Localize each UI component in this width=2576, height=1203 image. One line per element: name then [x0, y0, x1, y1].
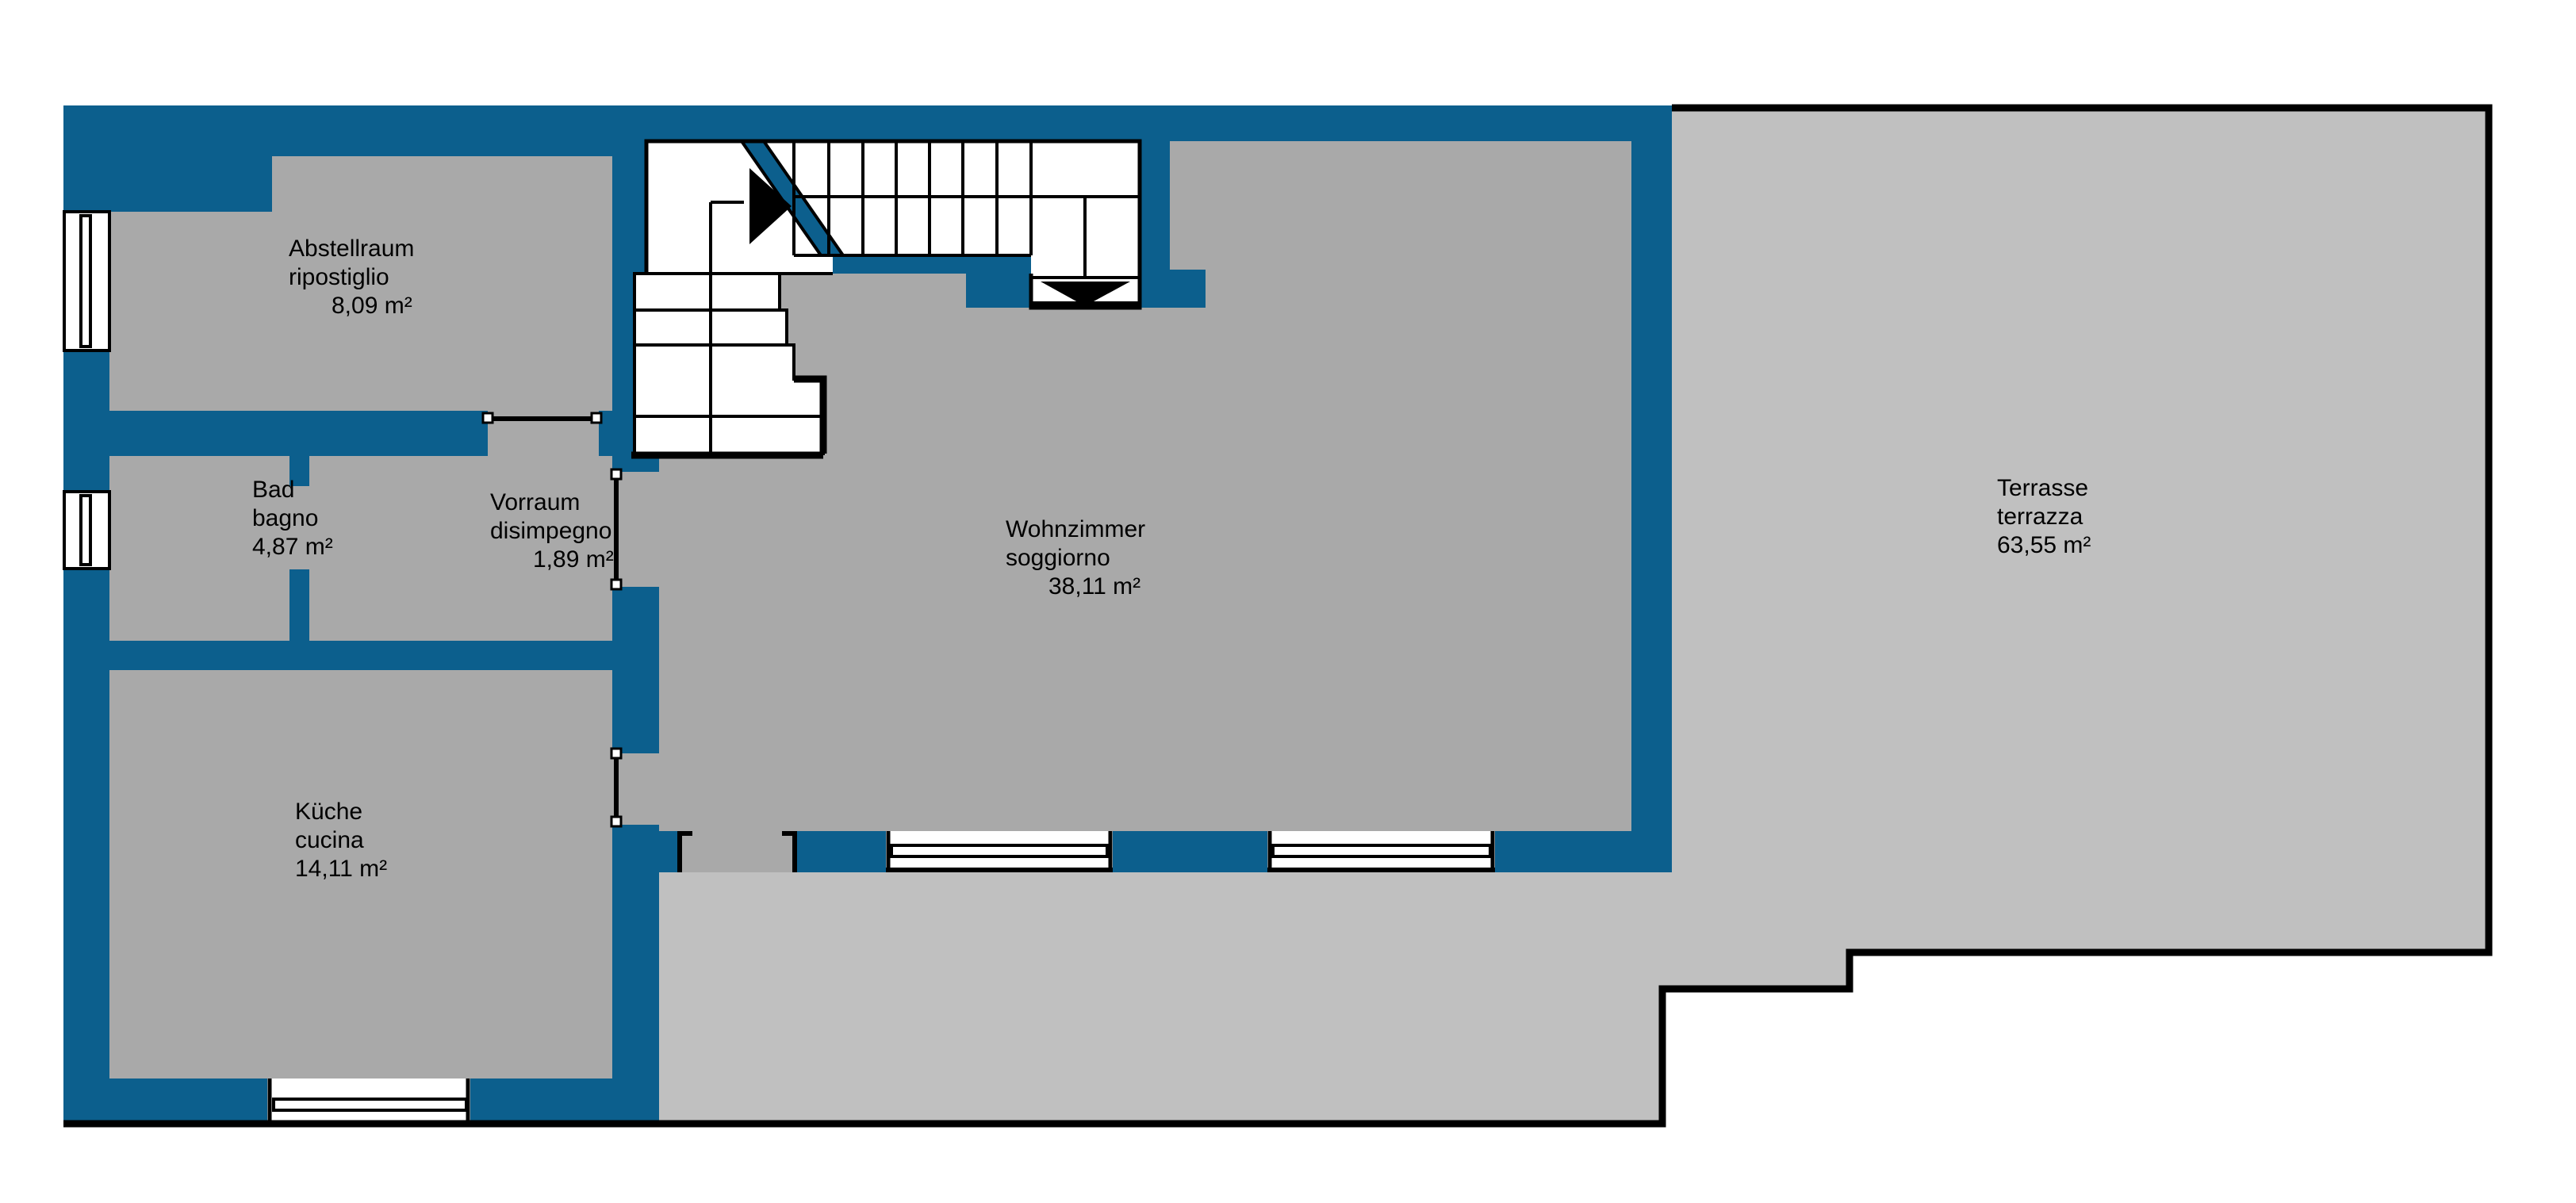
room-label-abstellraum: Abstellraum ripostiglio 8,09 m²	[289, 235, 414, 320]
room-area: 38,11 m²	[1006, 573, 1145, 601]
room-name-de: Vorraum	[490, 488, 614, 517]
stairs-under-block	[966, 255, 1031, 308]
room-label-vorraum: Vorraum disimpegno 1,89 m²	[490, 488, 614, 574]
room-name-de: Wohnzimmer	[1006, 515, 1145, 544]
door-vorraum-opening	[612, 472, 659, 587]
door-terrace-tick-left	[680, 831, 692, 836]
wall-stub-bad-bottom	[289, 569, 309, 641]
floor-plan-drawing	[0, 0, 2576, 1203]
room-name-it: ripostiglio	[289, 263, 414, 292]
room-name-it: cucina	[295, 826, 387, 855]
window-abstellraum-glass	[81, 216, 90, 347]
room-label-terrasse: Terrasse terrazza 63,55 m²	[1997, 474, 2091, 560]
room-area: 4,87 m²	[252, 533, 333, 561]
door-kitchen-jamb-top	[611, 749, 621, 758]
room-area: 1,89 m²	[490, 546, 614, 574]
room-label-bad: Bad bagno 4,87 m²	[252, 476, 333, 561]
room-label-wohnzimmer: Wohnzimmer soggiorno 38,11 m²	[1006, 515, 1145, 601]
room-name-de: Bad	[252, 476, 333, 504]
door-vorraum-jamb-top	[611, 469, 621, 479]
window-living-2-glass	[1273, 845, 1490, 856]
window-living-1-glass	[891, 845, 1107, 856]
door-vorraum-jamb-bottom	[611, 580, 621, 589]
floor-plan-page: Abstellraum ripostiglio 8,09 m² Bad bagn…	[0, 0, 2576, 1203]
room-name-de: Küche	[295, 798, 387, 826]
room-name-it: disimpegno	[490, 517, 614, 546]
door-terrace-opening	[677, 831, 797, 872]
room-name-de: Terrasse	[1997, 474, 2091, 503]
wall-bad-bottom	[109, 641, 659, 670]
door-kitchen-jamb-bottom	[611, 817, 621, 826]
room-name-it: bagno	[252, 504, 333, 533]
wall-top	[63, 105, 1672, 141]
wall-stair-right-block	[1140, 270, 1206, 308]
window-kitchen-glass	[274, 1099, 466, 1110]
room-area: 8,09 m²	[289, 292, 414, 320]
door-kitchen-opening	[612, 753, 659, 825]
door-abstellraum-jamb-right	[592, 413, 601, 423]
room-name-de: Abstellraum	[289, 235, 414, 263]
door-terrace-tick-right	[782, 831, 795, 836]
stairs-under-band	[833, 255, 966, 274]
room-area: 63,55 m²	[1997, 531, 2091, 560]
window-bad-glass	[81, 496, 90, 565]
wall-living-bottom	[659, 831, 1672, 872]
room-label-kueche: Küche cucina 14,11 m²	[295, 798, 387, 883]
room-name-it: terrazza	[1997, 503, 2091, 531]
wall-right	[1631, 105, 1672, 871]
door-abstellraum-jamb-left	[483, 413, 493, 423]
room-name-it: soggiorno	[1006, 544, 1145, 573]
wall-stair-right-stub	[1140, 105, 1170, 270]
room-area: 14,11 m²	[295, 855, 387, 883]
